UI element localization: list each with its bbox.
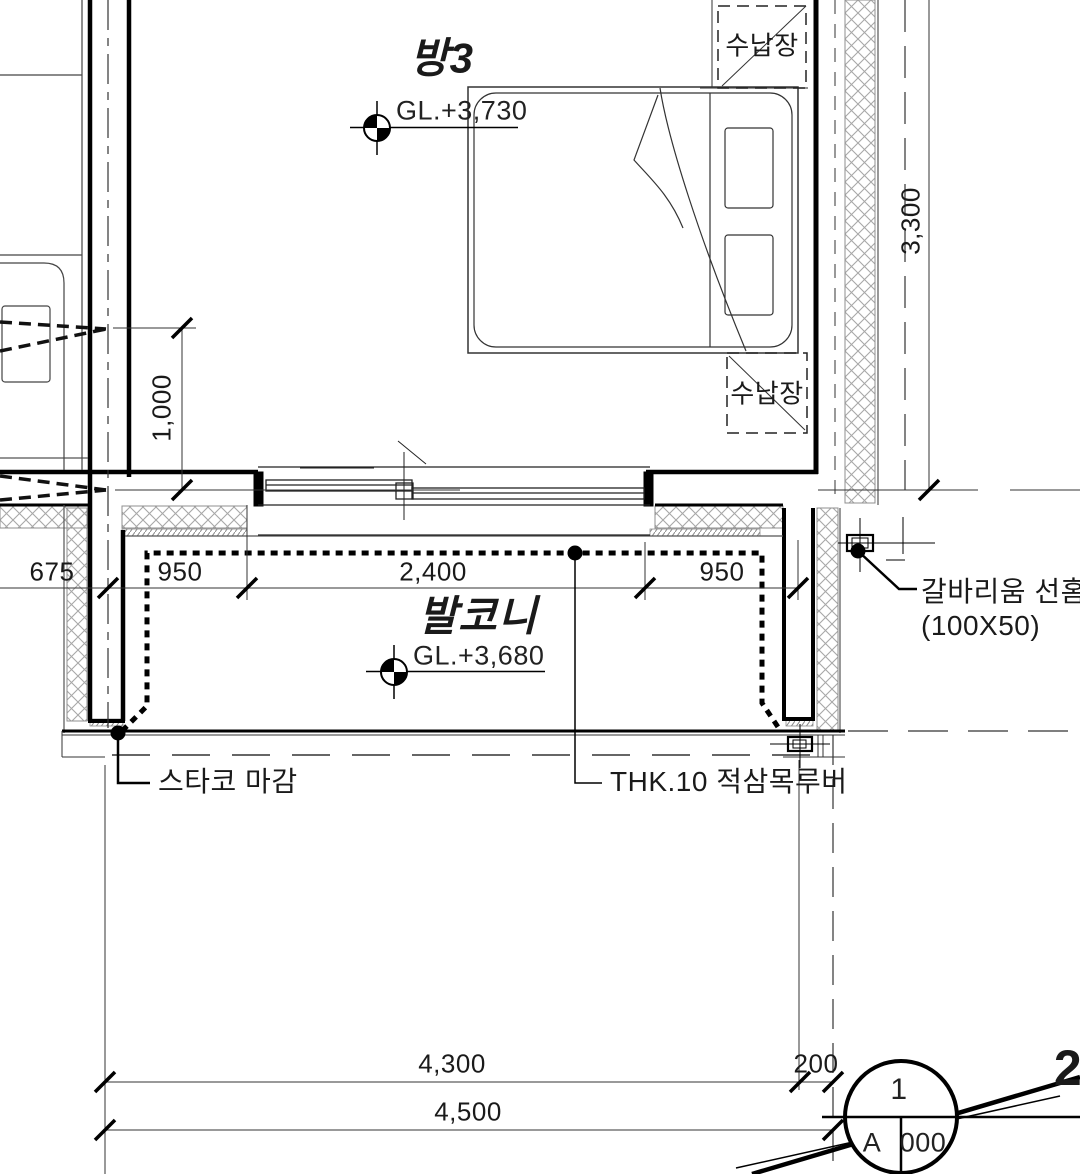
dim-1000: 1,000 <box>147 374 178 442</box>
dim-200: 200 <box>794 1049 839 1080</box>
dim-2400: 2,400 <box>399 557 467 588</box>
balcony-title: 발코니 <box>419 583 538 644</box>
dimension-ticks <box>95 318 939 1140</box>
dim-950-left: 950 <box>158 557 203 588</box>
storage-label-middle: 수납장 <box>730 374 803 411</box>
note-louver: THK.10 적삼목루버 <box>610 760 848 800</box>
balcony-level-label: GL.+3,680 <box>413 641 544 672</box>
floor-plan-canvas: 방3 GL.+3,730 발코니 GL.+3,680 수납장 수납장 3,300… <box>0 0 1080 1174</box>
corner-number: 2 <box>1054 1039 1080 1097</box>
room3-level-label: GL.+3,730 <box>396 96 527 127</box>
detail-number: 1 <box>890 1073 907 1107</box>
note-stucco: 스타코 마감 <box>158 760 298 800</box>
downspout-symbol-upper <box>838 517 935 572</box>
detail-reference-circle <box>822 1061 1080 1173</box>
pillow <box>725 235 773 315</box>
dim-675: 675 <box>30 557 75 588</box>
pillow <box>725 128 773 208</box>
dim-4300: 4,300 <box>418 1049 486 1080</box>
room3-title: 방3 <box>410 25 474 86</box>
balcony-slab-edge <box>62 731 1080 757</box>
sliding-window <box>258 441 650 535</box>
blanket-fold <box>634 95 683 228</box>
dim-4500: 4,500 <box>434 1097 502 1128</box>
dim-3300: 3,300 <box>896 187 927 255</box>
storage-label-top: 수납장 <box>725 26 798 63</box>
detail-sheet-right: 000 <box>900 1128 947 1159</box>
left-room-furniture <box>0 0 82 470</box>
note-gutter: 갈바리움 선홈 <box>921 570 1080 610</box>
detail-sheet-left: A <box>863 1128 882 1159</box>
note-gutter-size: (100X50) <box>921 610 1040 642</box>
dim-950-right: 950 <box>700 557 745 588</box>
